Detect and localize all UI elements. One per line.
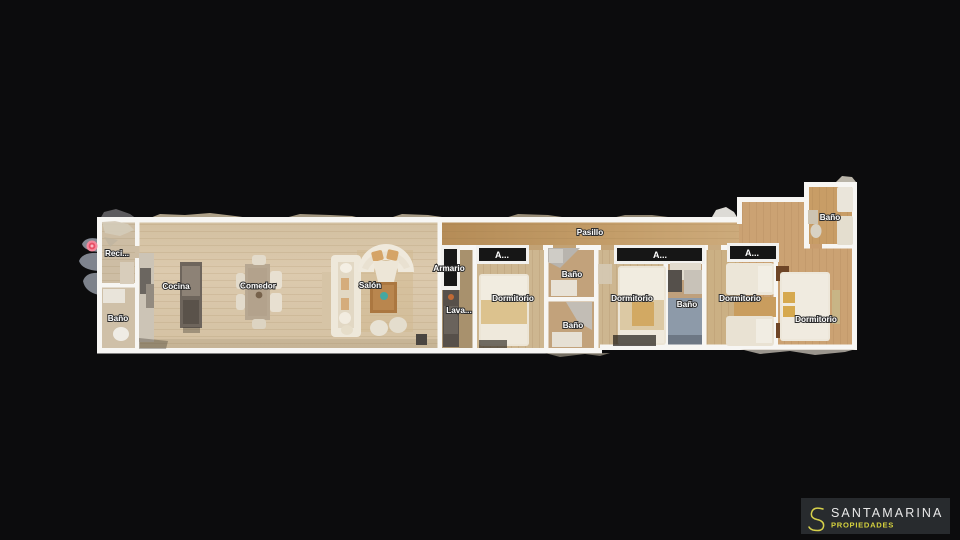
svg-text:Pasillo: Pasillo <box>577 228 603 237</box>
svg-text:Dormitorio: Dormitorio <box>719 294 761 303</box>
svg-text:Dormitorio: Dormitorio <box>492 294 534 303</box>
svg-text:Dormitorio: Dormitorio <box>611 294 653 303</box>
svg-text:Cocina: Cocina <box>162 282 190 291</box>
svg-text:Armario: Armario <box>433 264 464 273</box>
svg-text:A...: A... <box>653 250 667 260</box>
svg-text:Dormitorio: Dormitorio <box>795 315 837 324</box>
svg-text:A...: A... <box>495 250 509 260</box>
svg-text:Lava...: Lava... <box>446 306 472 315</box>
svg-text:Comedor: Comedor <box>240 282 277 291</box>
svg-text:Baño: Baño <box>677 300 697 309</box>
svg-text:Reci...: Reci... <box>105 249 129 258</box>
svg-text:SANTAMARINA: SANTAMARINA <box>831 506 943 520</box>
svg-text:Baño: Baño <box>820 213 840 222</box>
svg-text:Salón: Salón <box>359 281 381 290</box>
svg-text:A...: A... <box>745 248 759 258</box>
svg-text:Baño: Baño <box>108 314 128 323</box>
svg-text:Baño: Baño <box>563 321 583 330</box>
svg-text:Baño: Baño <box>562 270 582 279</box>
svg-text:PROPIEDADES: PROPIEDADES <box>831 521 894 530</box>
